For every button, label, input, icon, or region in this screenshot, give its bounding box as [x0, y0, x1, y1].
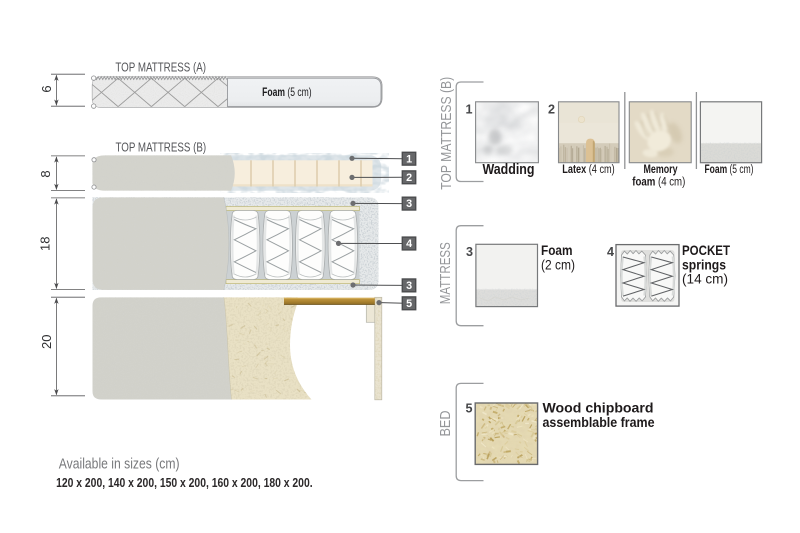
svg-text:assemblable frame: assemblable frame	[543, 415, 655, 430]
svg-text:4: 4	[406, 238, 412, 250]
svg-text:Foam: Foam	[541, 243, 573, 258]
svg-text:4: 4	[607, 245, 614, 259]
svg-text:Wood chipboard: Wood chipboard	[543, 400, 654, 415]
svg-text:Available in sizes (cm): Available in sizes (cm)	[59, 456, 180, 472]
svg-text:20: 20	[39, 335, 54, 349]
svg-text:3: 3	[406, 198, 412, 210]
svg-text:2: 2	[548, 102, 555, 116]
svg-text:8: 8	[38, 170, 53, 177]
svg-text:3: 3	[406, 280, 412, 292]
svg-text:18: 18	[38, 237, 53, 251]
svg-text:TOP MATTRESS (B): TOP MATTRESS (B)	[116, 140, 207, 154]
svg-text:BED: BED	[438, 411, 454, 437]
svg-text:5: 5	[406, 298, 412, 310]
svg-text:Foam (5 cm): Foam (5 cm)	[705, 162, 754, 176]
svg-text:Foam (5 cm): Foam (5 cm)	[262, 86, 312, 99]
svg-text:POCKET: POCKET	[682, 243, 731, 258]
svg-text:1: 1	[465, 102, 472, 116]
svg-text:2: 2	[406, 172, 412, 184]
svg-text:Latex (4 cm): Latex (4 cm)	[562, 162, 615, 176]
svg-text:120 x 200, 140 x 200, 150 x 20: 120 x 200, 140 x 200, 150 x 200, 160 x 2…	[56, 475, 313, 490]
svg-text:6: 6	[39, 85, 54, 92]
svg-text:(2 cm): (2 cm)	[541, 257, 575, 272]
svg-text:Wadding: Wadding	[483, 162, 535, 178]
svg-text:5: 5	[465, 402, 472, 416]
svg-text:TOP MATTRESS (A): TOP MATTRESS (A)	[115, 61, 206, 75]
svg-text:1: 1	[406, 153, 412, 165]
svg-text:3: 3	[466, 245, 473, 259]
svg-text:springs: springs	[682, 257, 726, 272]
svg-text:MATTRESS: MATTRESS	[438, 242, 454, 304]
svg-text:(14 cm): (14 cm)	[682, 271, 728, 286]
svg-text:foam (4 cm): foam (4 cm)	[632, 175, 685, 189]
svg-text:TOP MATTRESS (B): TOP MATTRESS (B)	[439, 77, 455, 190]
